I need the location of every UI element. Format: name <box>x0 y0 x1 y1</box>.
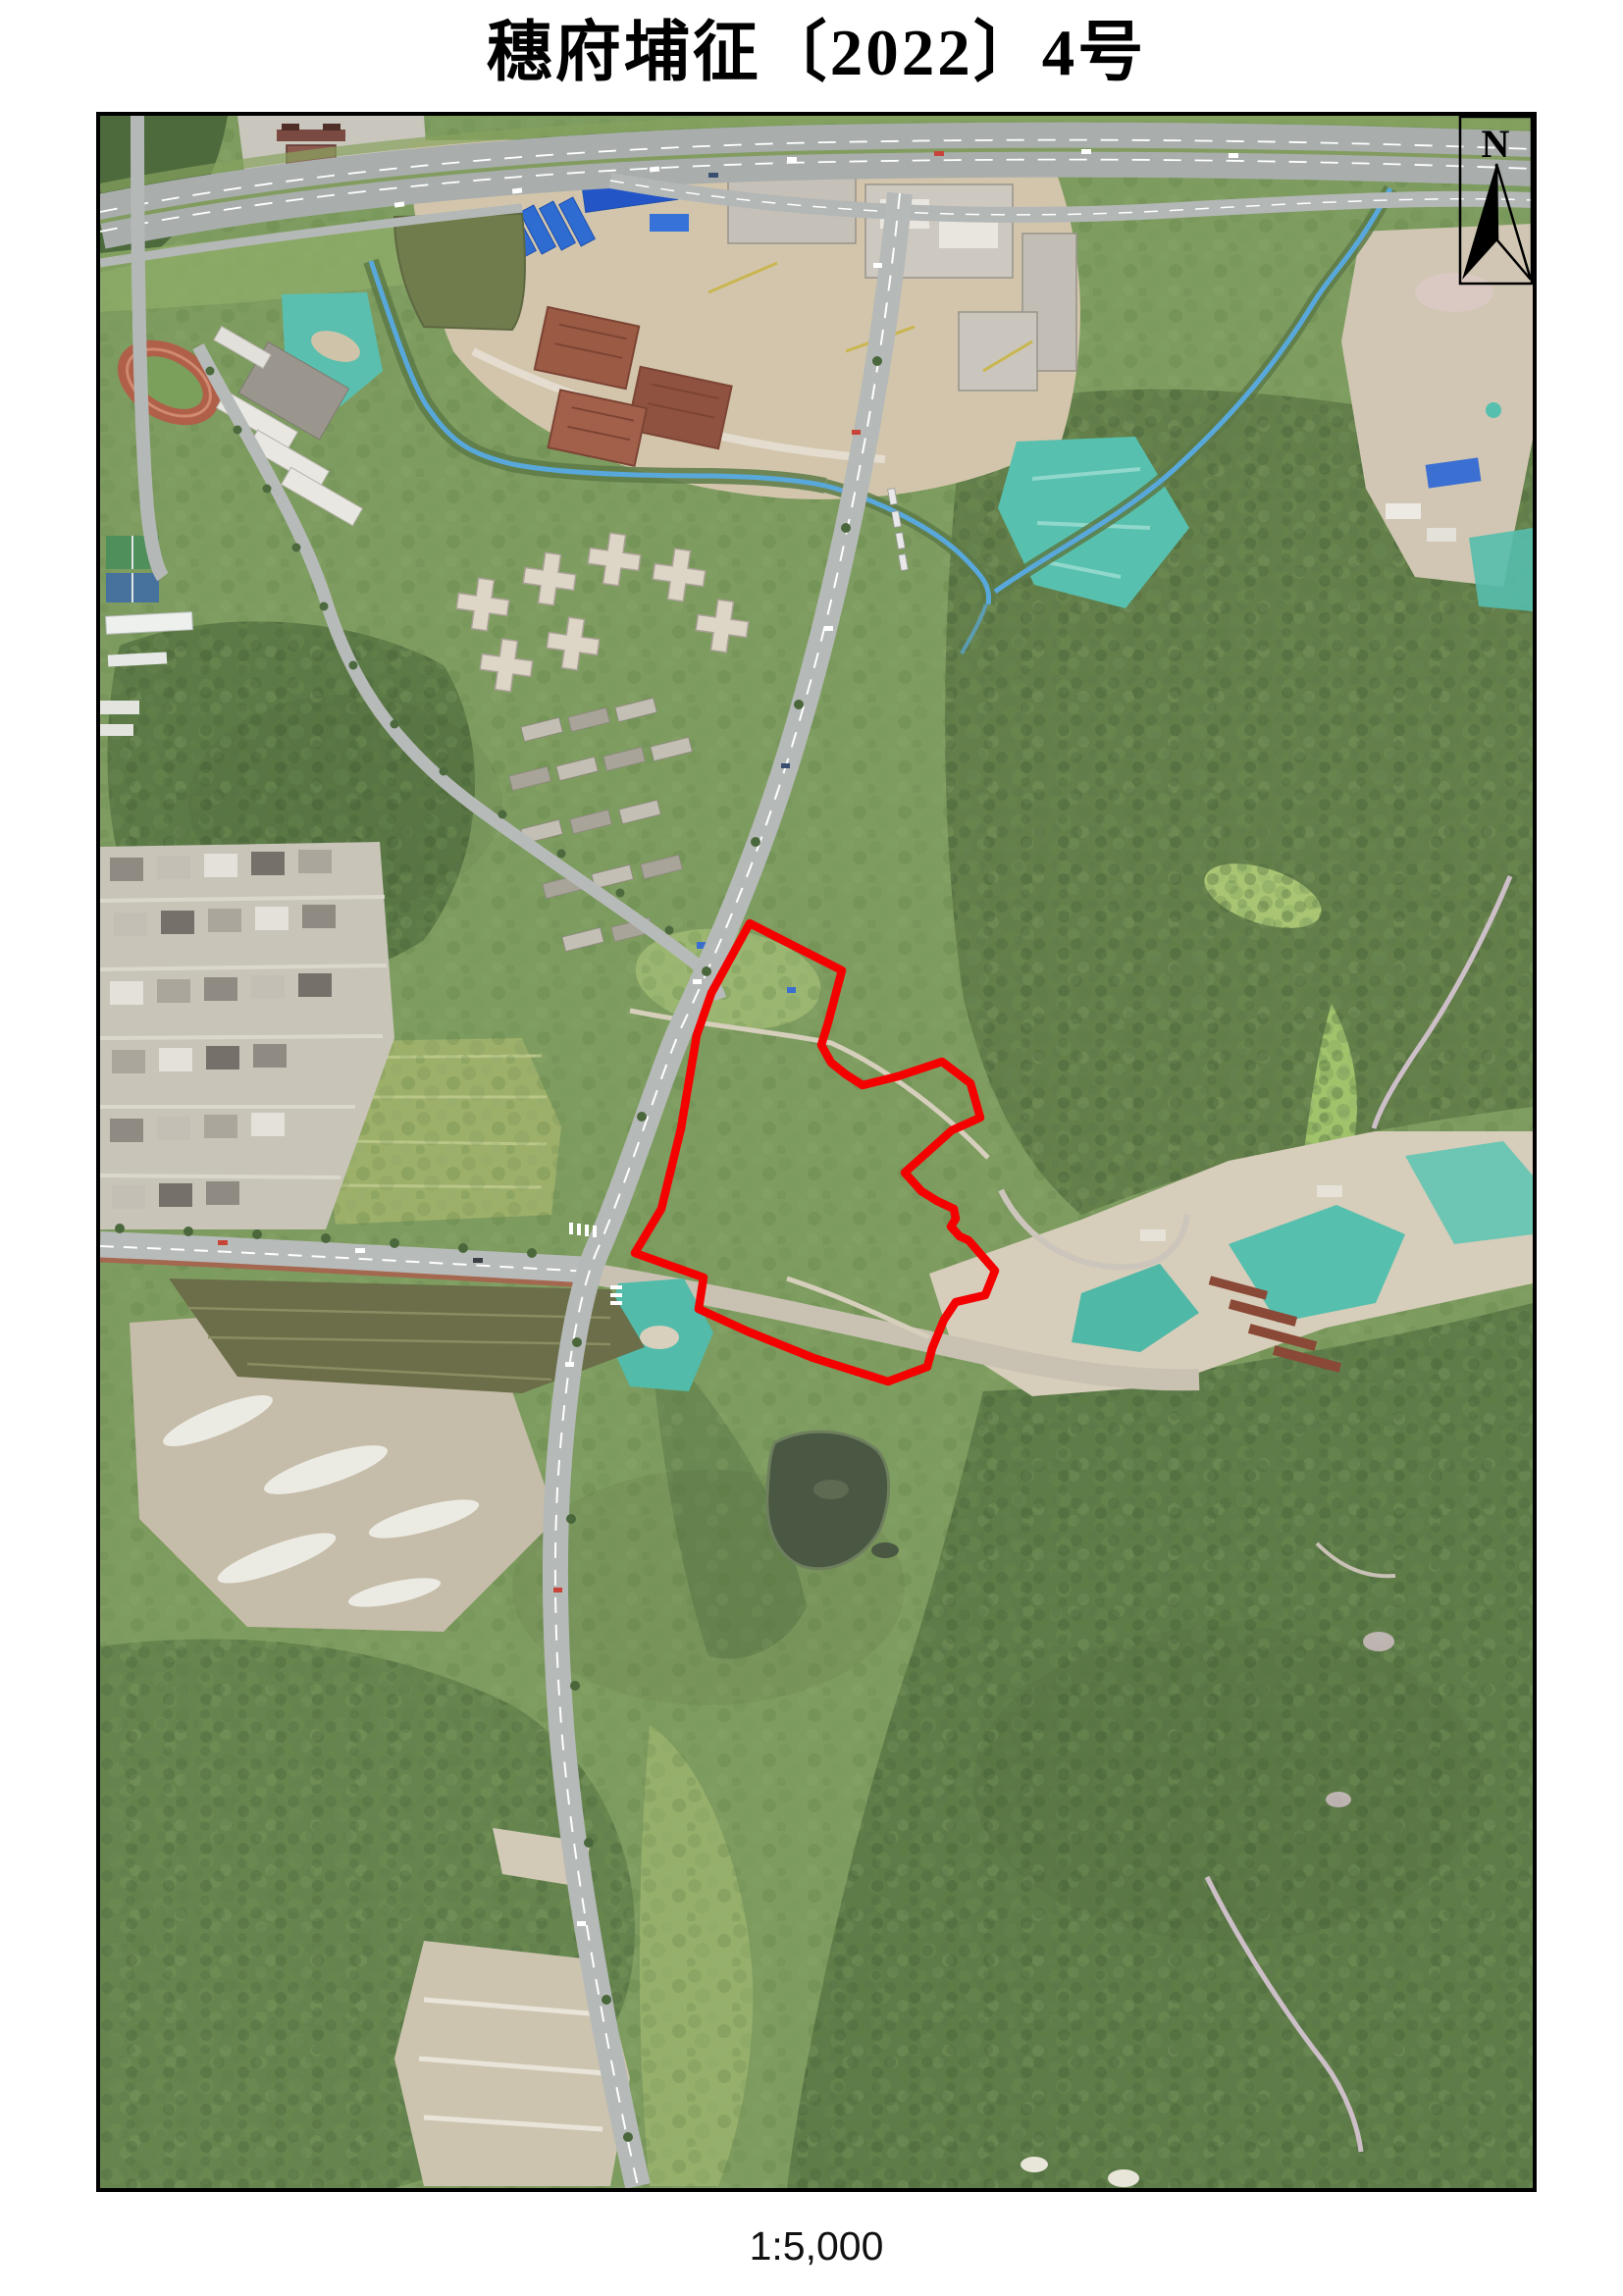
satellite-imagery <box>100 116 1533 2188</box>
north-label: N <box>1482 122 1510 166</box>
map-area: N <box>96 112 1537 2192</box>
scale-label: 1:5,000 <box>96 2223 1537 2270</box>
page-title: 穗府埔征〔2022〕4号 <box>96 6 1537 104</box>
